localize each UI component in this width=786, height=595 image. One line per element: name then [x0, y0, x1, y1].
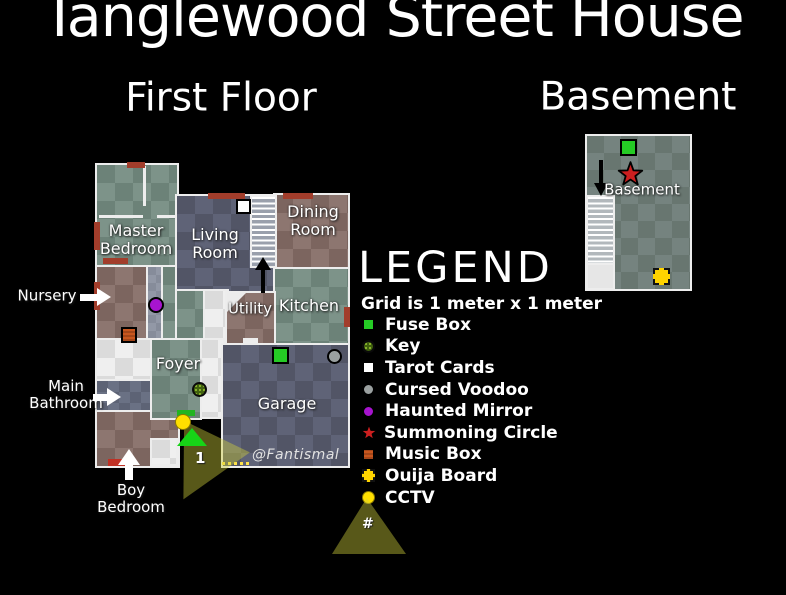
legend-title: LEGEND — [358, 243, 553, 293]
key-icon — [362, 340, 375, 353]
legend-row: Tarot Cards — [362, 357, 558, 379]
haunted-mirror-icon — [362, 405, 375, 418]
legend: LEGEND Grid is 1 meter x 1 meter Fuse Bo… — [0, 0, 786, 595]
legend-label: Haunted Mirror — [385, 401, 532, 421]
legend-label: Summoning Circle — [384, 423, 558, 443]
legend-row: Fuse Box — [362, 314, 558, 336]
legend-row: Haunted Mirror — [362, 400, 558, 422]
ouija-board-icon — [362, 469, 375, 482]
music-box-icon — [362, 448, 375, 461]
legend-label: Key — [385, 336, 421, 356]
legend-label: Tarot Cards — [385, 358, 495, 378]
fuse-box-icon — [362, 318, 375, 331]
legend-label: CCTV — [385, 488, 435, 508]
legend-label: Music Box — [385, 444, 482, 464]
legend-row: Cursed Voodoo — [362, 379, 558, 401]
legend-row: CCTV — [362, 487, 558, 509]
legend-row: Ouija Board — [362, 465, 558, 487]
legend-grid-note: Grid is 1 meter x 1 meter — [361, 294, 602, 314]
legend-cctv-cone-symbol: # — [362, 516, 374, 532]
legend-list: Fuse Box Key Tarot Cards Cursed Voodoo H… — [362, 314, 558, 508]
summoning-circle-icon — [360, 424, 378, 442]
legend-label: Fuse Box — [385, 315, 471, 335]
legend-label: Ouija Board — [385, 466, 497, 486]
legend-row: Summoning Circle — [362, 422, 558, 444]
map-canvas: Tanglewood Street House First Floor Base… — [0, 0, 786, 595]
legend-row: Music Box — [362, 444, 558, 466]
legend-label: Cursed Voodoo — [385, 380, 529, 400]
tarot-cards-icon — [362, 361, 375, 374]
legend-row: Key — [362, 336, 558, 358]
cursed-voodoo-icon — [362, 383, 375, 396]
